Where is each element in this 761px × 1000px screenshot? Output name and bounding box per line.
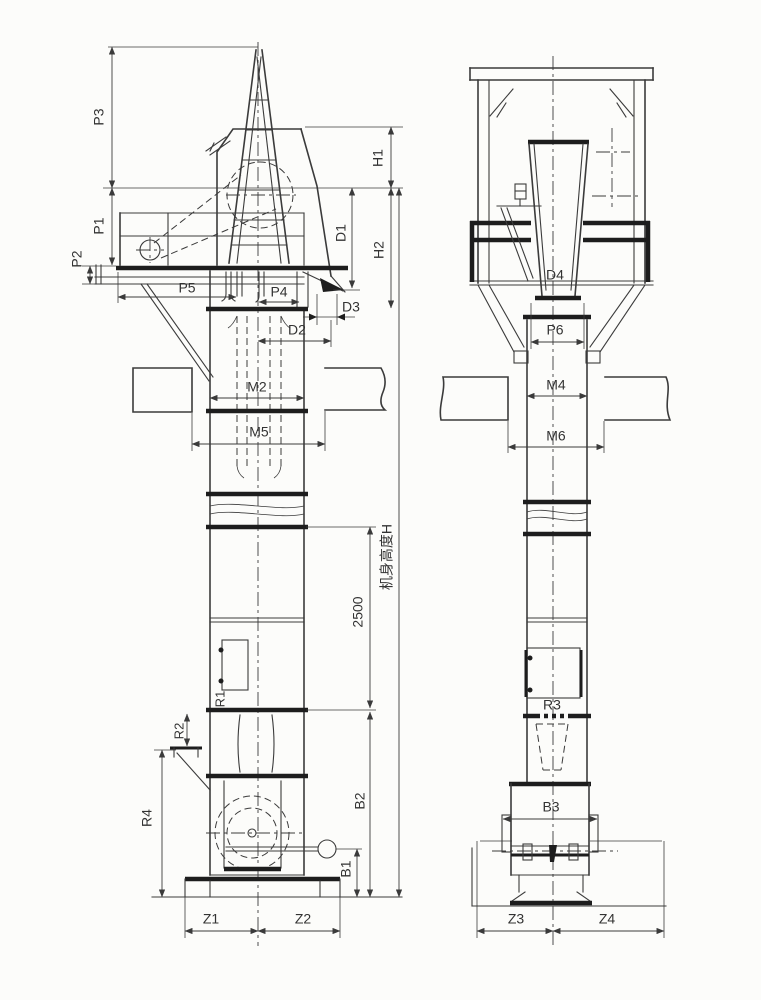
dim-label-d3: D3 [342,299,360,315]
dim-label-m6: M6 [546,428,566,444]
left-elevation-view: P3 P1 P2 H1 D1 H2 P5 P4 D3 D2 M2 M5 2500… [69,42,403,946]
break-line [210,512,304,515]
side-plate [589,815,598,852]
hinge-dot [219,648,224,653]
frame-foot [586,351,600,363]
right-side-view: D4 P6 M4 M6 R3 B3 Z3 Z4 [440,56,670,946]
dim-label-z3: Z3 [508,911,525,927]
bucket-elevator-dimension-drawing: P3 P1 P2 H1 D1 H2 P5 P4 D3 D2 M2 M5 2500… [0,0,761,1000]
right-dimension-lines [477,303,664,938]
break-line [210,504,304,507]
dim-label-d2: D2 [288,322,306,338]
scanned-technical-drawing: P3 P1 P2 H1 D1 H2 P5 P4 D3 D2 M2 M5 2500… [0,0,761,1000]
dim-label-p2: P2 [69,250,85,267]
dim-label-p1: P1 [91,217,107,234]
dim-label-b1: B1 [338,860,354,877]
dim-label-r2: R2 [171,723,186,740]
dim-label-p6: P6 [546,322,563,338]
break-line [527,517,587,520]
dim-label-m2: M2 [247,379,267,395]
left-casing [206,271,308,875]
dim-label-d4: D4 [546,267,564,283]
dim-label-p4: P4 [270,284,287,300]
dim-label-r1: R1 [212,691,227,708]
dim-label-b3: B3 [542,799,559,815]
left-inspection-door [170,640,248,790]
dim-label-p3: P3 [91,108,107,125]
dim-label-r3: R3 [543,697,561,713]
dim-label-2500: 2500 [350,596,366,627]
belt-line [154,175,241,243]
left-head-aframe [108,47,289,263]
hinge-dot [528,688,533,693]
dim-label-r4: R4 [139,809,155,827]
belt-line [161,209,276,258]
dim-label-body-height: 机身高度H [379,524,395,590]
dim-label-h2: H2 [371,241,387,259]
break-line [527,510,587,513]
right-inspection-door [526,648,581,698]
dim-label-d1: D1 [333,224,349,242]
dim-label-z2: Z2 [295,911,312,927]
right-boot [472,784,666,906]
dim-label-z1: Z1 [203,911,220,927]
dim-label-m4: M4 [546,377,566,393]
frame-foot [514,351,528,363]
dim-label-z4: Z4 [599,911,616,927]
hinge-dot [528,656,533,661]
takeup-handle [318,840,336,858]
dim-label-b2: B2 [352,792,368,809]
left-drive-platform [95,175,348,381]
dim-label-p5: P5 [178,280,195,296]
dim-label-m5: M5 [249,424,269,440]
dim-label-h1: H1 [370,149,386,167]
side-plate [502,815,511,852]
hinge-dot [219,679,224,684]
right-discharge-chute [497,128,640,298]
